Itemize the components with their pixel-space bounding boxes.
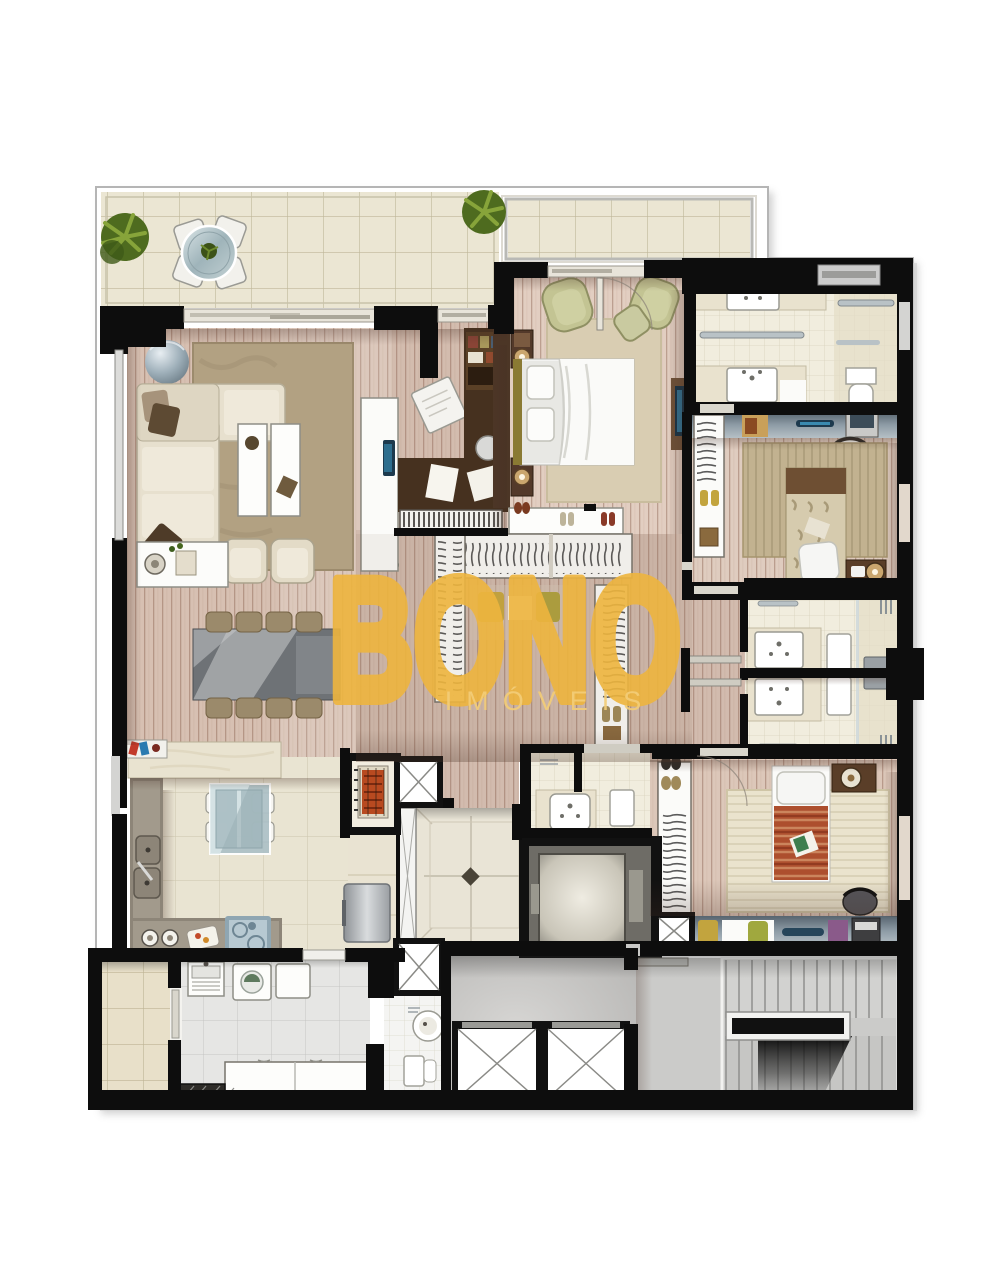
svg-text:IMÓVEIS: IMÓVEIS: [445, 685, 656, 716]
